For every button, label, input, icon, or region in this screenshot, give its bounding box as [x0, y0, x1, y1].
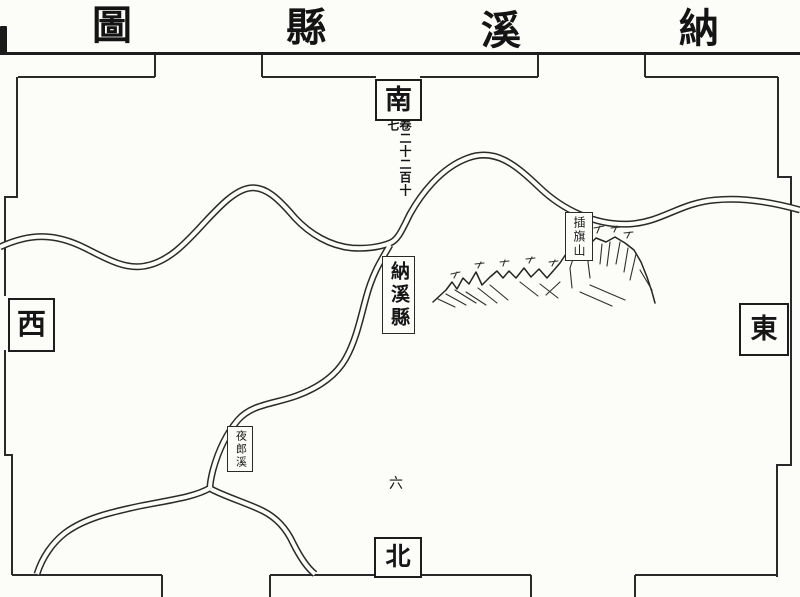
compass-east-box: 東 [739, 303, 789, 356]
mountain-label-box: 插旗山 [565, 212, 593, 261]
map-page: 圖 縣 溪 納 [0, 0, 800, 597]
creek-label-box: 夜郎溪 [227, 426, 253, 472]
mountain-range [433, 226, 655, 307]
county-label: 納溪縣 [389, 261, 408, 330]
compass-south-label: 南 [385, 87, 412, 114]
west-fork-outline [37, 488, 210, 574]
mountain-label: 插旗山 [573, 216, 585, 258]
river-network [0, 155, 800, 574]
volume-note: 卷二十二百十七 [387, 119, 411, 209]
compass-north-label: 北 [385, 545, 410, 570]
creek-label: 夜郎溪 [235, 430, 246, 469]
compass-south-box: 南 [375, 79, 422, 121]
compass-east-label: 東 [751, 316, 778, 343]
folio-mark: 六 [389, 473, 403, 493]
compass-north-box: 北 [374, 537, 422, 578]
county-label-box: 納溪縣 [382, 256, 415, 334]
compass-west-box: 西 [8, 298, 55, 352]
east-fork-outline [211, 489, 315, 574]
compass-west-label: 西 [17, 311, 46, 340]
